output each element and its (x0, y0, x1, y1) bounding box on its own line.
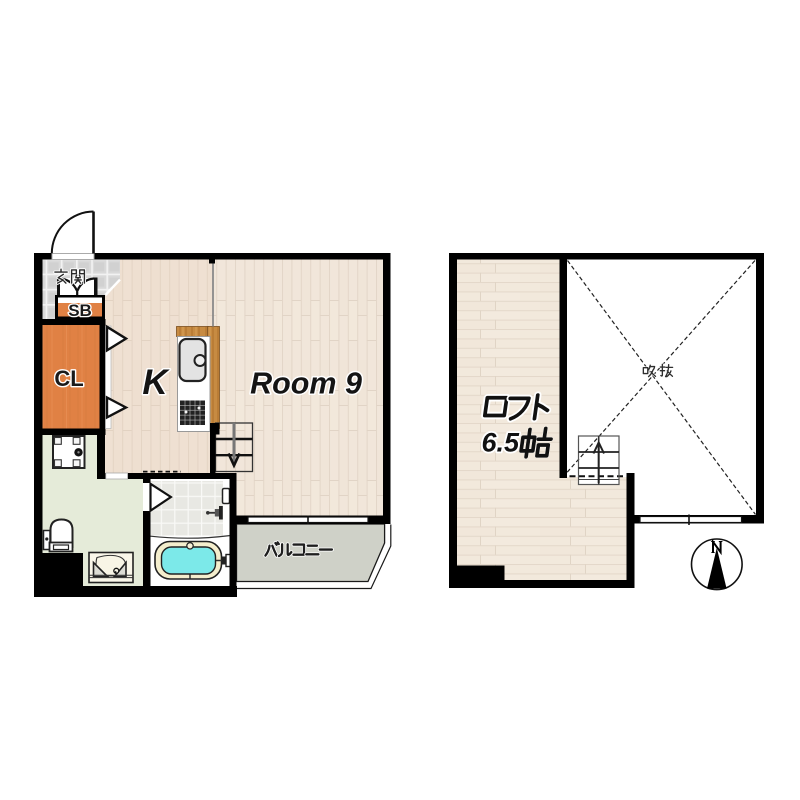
svg-text:K: K (142, 363, 170, 402)
svg-text:CL: CL (54, 366, 83, 391)
svg-text:6.5: 6.5 (482, 428, 521, 458)
svg-text:Room 9: Room 9 (250, 367, 362, 401)
svg-text:SB: SB (68, 301, 92, 320)
